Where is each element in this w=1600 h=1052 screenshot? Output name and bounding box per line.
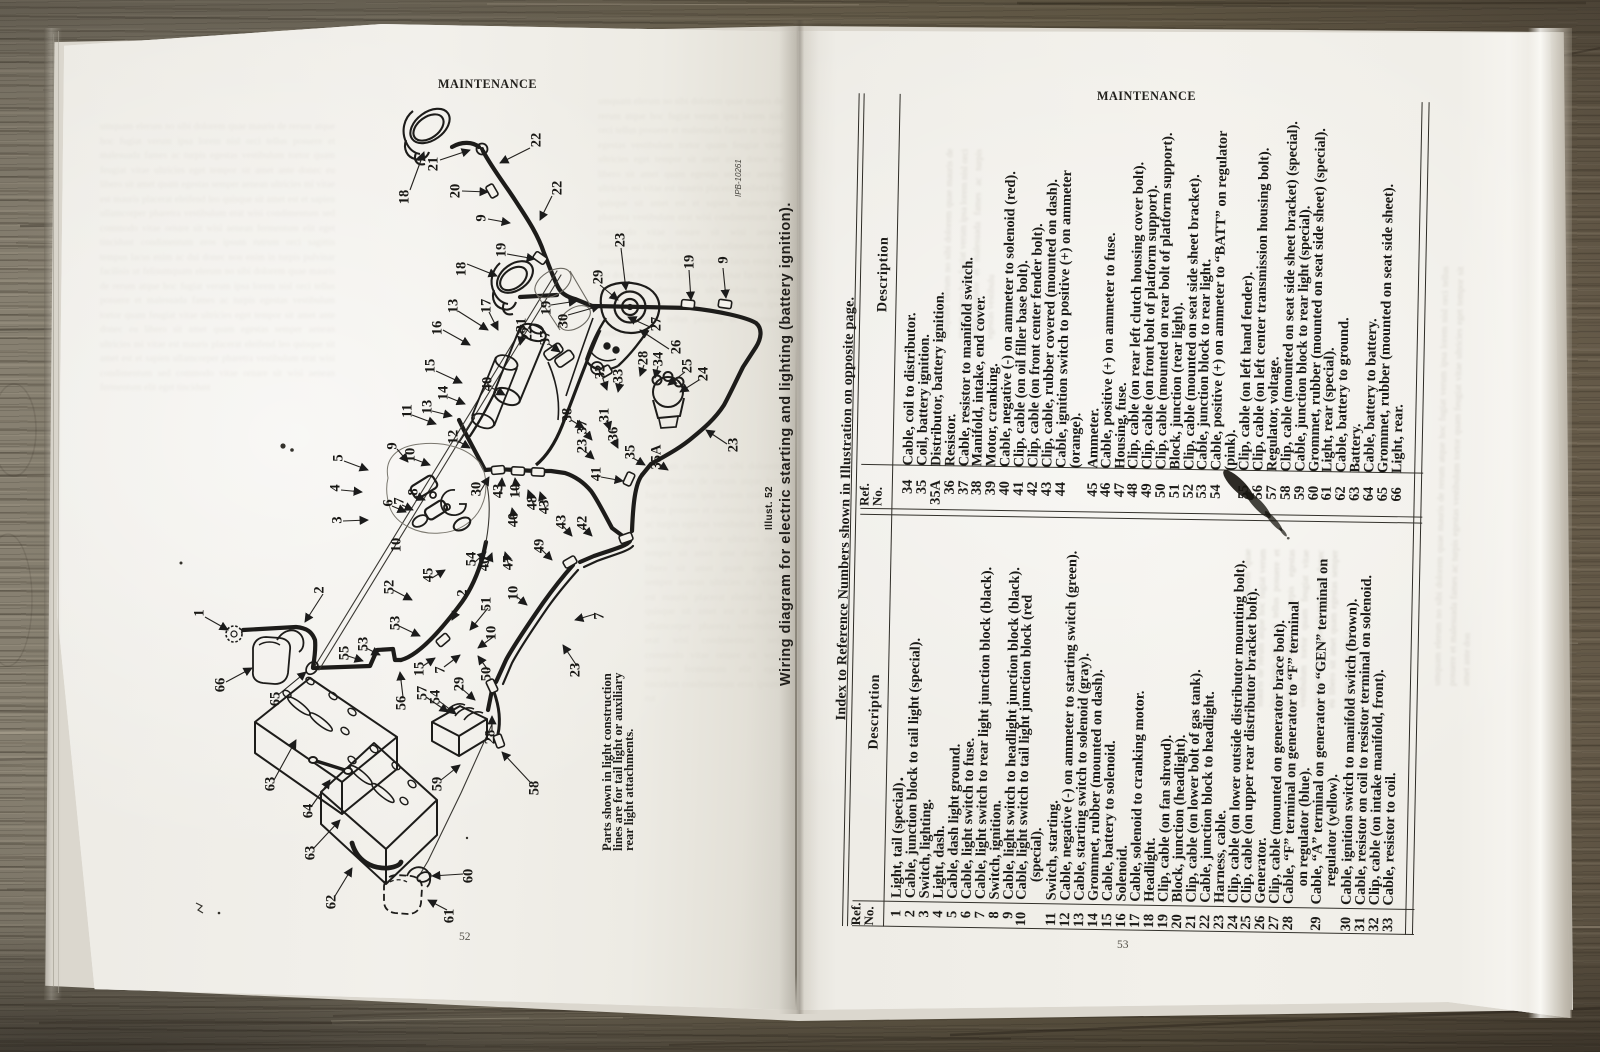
svg-text:23: 23 (726, 438, 742, 453)
svg-text:19: 19 (682, 255, 698, 270)
svg-text:40: 40 (506, 513, 522, 528)
svg-text:31: 31 (597, 408, 613, 423)
svg-text:28: 28 (636, 351, 652, 366)
svg-text:22: 22 (520, 327, 536, 342)
svg-text:IPB-10261: IPB-10261 (734, 159, 743, 197)
svg-text:30: 30 (469, 482, 485, 497)
svg-text:14: 14 (436, 386, 452, 401)
svg-text:29: 29 (591, 270, 607, 285)
svg-text:54: 54 (428, 690, 444, 705)
svg-text:59: 59 (430, 777, 446, 792)
svg-text:7: 7 (392, 497, 408, 504)
svg-text:26: 26 (669, 340, 685, 355)
svg-text:rear light attachments.: rear light attachments. (622, 729, 636, 851)
svg-text:15: 15 (412, 662, 428, 677)
svg-text:20: 20 (448, 184, 464, 199)
svg-text:56: 56 (394, 696, 410, 711)
svg-text:23: 23 (575, 439, 591, 454)
svg-text:7: 7 (592, 612, 608, 619)
svg-text:52: 52 (382, 580, 398, 595)
svg-text:16: 16 (430, 321, 446, 336)
svg-text:1: 1 (192, 609, 208, 616)
svg-text:3: 3 (330, 516, 346, 523)
svg-text:9: 9 (385, 442, 401, 449)
svg-text:21: 21 (426, 157, 442, 172)
svg-text:7: 7 (433, 666, 449, 673)
svg-text:17: 17 (479, 299, 495, 314)
svg-text:65: 65 (268, 692, 284, 707)
svg-text:64: 64 (301, 804, 317, 819)
svg-text:9: 9 (474, 214, 490, 221)
svg-text:10: 10 (506, 586, 522, 601)
svg-text:12: 12 (446, 430, 462, 445)
svg-text:13: 13 (446, 299, 462, 314)
svg-text:58: 58 (527, 781, 543, 796)
svg-text:35: 35 (623, 445, 639, 460)
svg-text:18: 18 (454, 262, 470, 277)
svg-text:4: 4 (328, 484, 344, 491)
svg-text:42: 42 (575, 516, 591, 531)
svg-text:32: 32 (593, 365, 609, 380)
svg-text:29: 29 (452, 677, 468, 692)
svg-text:66: 66 (213, 678, 229, 693)
svg-text:11: 11 (400, 404, 416, 418)
svg-text:10: 10 (389, 538, 405, 553)
svg-text:51: 51 (479, 597, 495, 612)
svg-text:2: 2 (455, 589, 471, 596)
svg-text:9: 9 (716, 256, 732, 263)
svg-text:18: 18 (397, 190, 413, 205)
svg-text:40: 40 (480, 377, 496, 392)
svg-text:45: 45 (421, 568, 437, 583)
svg-text:61: 61 (442, 909, 458, 924)
svg-text:23: 23 (613, 233, 629, 248)
svg-text:22: 22 (529, 133, 545, 148)
svg-text:2: 2 (312, 586, 328, 593)
svg-text:24: 24 (696, 367, 712, 382)
svg-text:30: 30 (556, 314, 572, 329)
svg-text:25: 25 (680, 359, 696, 374)
svg-text:41: 41 (589, 467, 605, 482)
svg-text:49: 49 (532, 539, 548, 554)
svg-text:19: 19 (494, 243, 510, 258)
svg-text:62: 62 (324, 895, 340, 910)
svg-text:19: 19 (539, 301, 555, 316)
svg-text:27: 27 (649, 317, 665, 332)
svg-text:Wiring diagram for electric st: Wiring diagram for electric starting and… (778, 202, 794, 686)
svg-text:37: 37 (538, 331, 554, 346)
svg-text:63: 63 (303, 846, 319, 861)
svg-text:Illust. 52: Illust. 52 (764, 486, 775, 530)
svg-text:37: 37 (575, 420, 591, 435)
svg-text:60: 60 (461, 869, 477, 884)
svg-text:43: 43 (491, 484, 507, 499)
svg-text:15: 15 (423, 359, 439, 374)
svg-text:13: 13 (420, 400, 436, 415)
svg-text:8: 8 (406, 488, 422, 495)
svg-text:33: 33 (611, 369, 627, 384)
svg-text:38: 38 (560, 408, 576, 423)
svg-text:5: 5 (331, 454, 347, 461)
svg-text:53: 53 (388, 616, 404, 631)
svg-text:10: 10 (508, 484, 524, 499)
svg-text:43: 43 (537, 500, 553, 515)
svg-text:34: 34 (651, 352, 667, 367)
svg-text:22: 22 (550, 181, 566, 196)
svg-text:23: 23 (568, 663, 584, 678)
svg-text:46: 46 (477, 557, 493, 572)
svg-text:53: 53 (356, 637, 372, 652)
svg-text:55: 55 (337, 646, 353, 661)
svg-text:10: 10 (484, 626, 500, 641)
svg-text:47: 47 (501, 556, 517, 571)
svg-text:36: 36 (606, 427, 622, 442)
svg-text:10: 10 (403, 448, 419, 463)
svg-text:63: 63 (263, 777, 279, 792)
svg-text:35A: 35A (649, 444, 665, 470)
svg-text:50: 50 (479, 667, 495, 682)
svg-text:28: 28 (483, 730, 499, 745)
svg-text:43: 43 (554, 515, 570, 530)
